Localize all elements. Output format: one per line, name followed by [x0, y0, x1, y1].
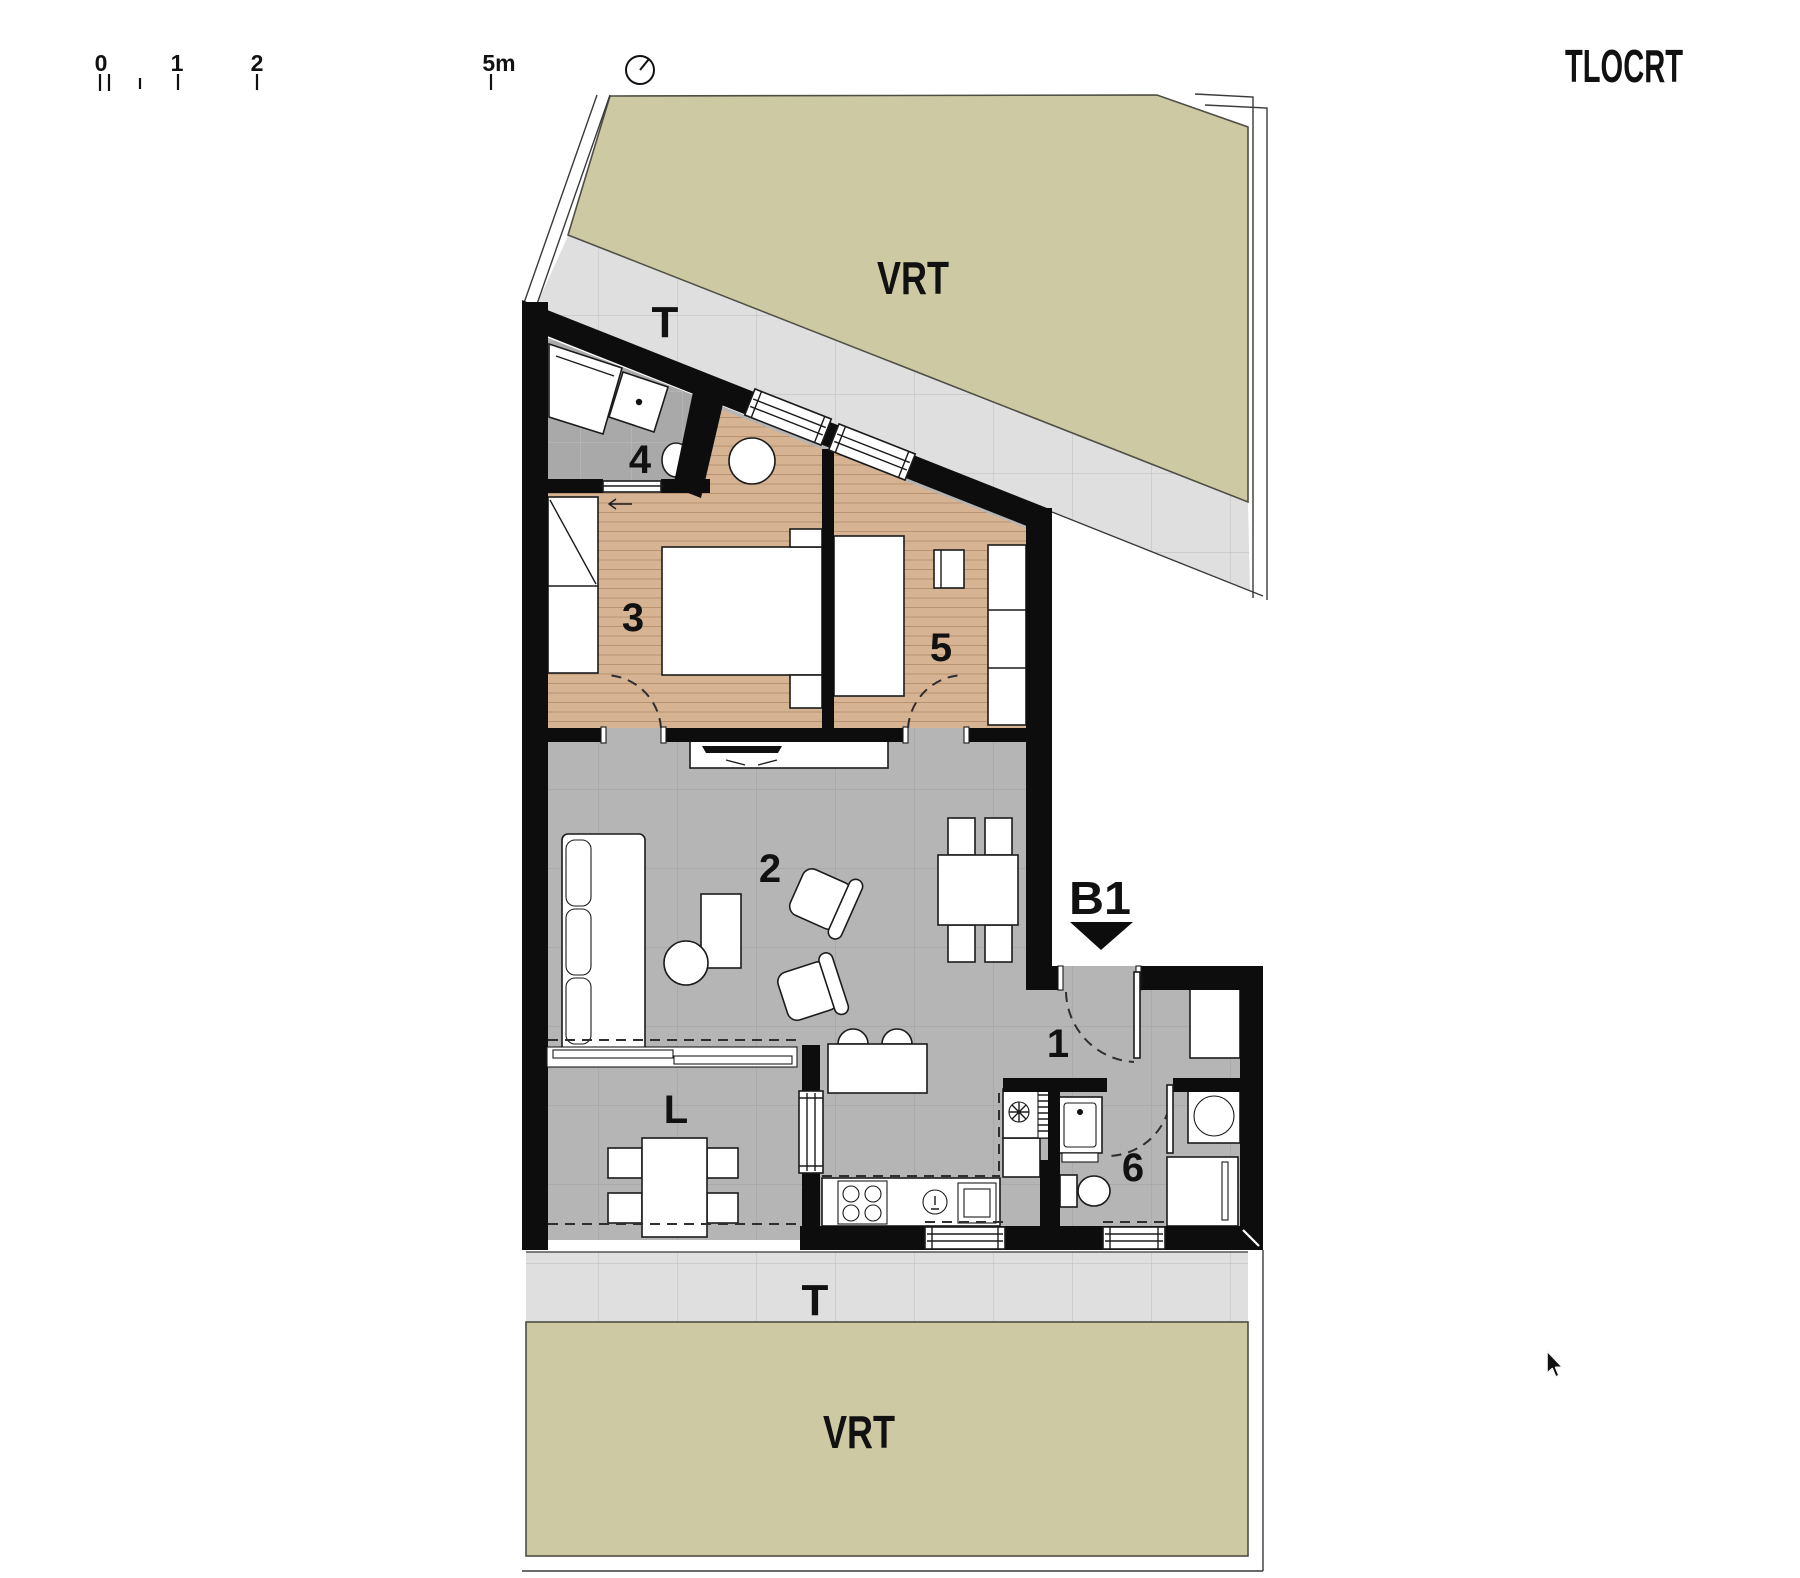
- section-mark-label: B1: [1069, 872, 1131, 924]
- side-table: [664, 941, 708, 985]
- section-mark-arrow-icon: [1070, 922, 1133, 950]
- wall-kitchen-west-b: [802, 1172, 820, 1228]
- terrace-bottom-label: T: [802, 1276, 829, 1325]
- glass-panel: [553, 1050, 673, 1058]
- sofa-cushion: [566, 978, 591, 1044]
- chair: [707, 1193, 738, 1223]
- bed-second: [834, 536, 904, 696]
- wall-bath2-west: [1048, 1078, 1060, 1162]
- room-label-bathroom1: 4: [629, 438, 652, 482]
- wall-bath1-south-a: [548, 479, 603, 493]
- wardrobe: [548, 497, 598, 673]
- shelf: [934, 550, 964, 588]
- tv-icon: [702, 746, 782, 753]
- washbasin2-base: [1062, 1153, 1098, 1162]
- shower2-glass: [1222, 1162, 1228, 1220]
- room-label-bedroom2: 5: [930, 626, 952, 670]
- dining-chair: [948, 925, 975, 962]
- dining-chair: [948, 818, 975, 855]
- scale-1: 1: [171, 50, 184, 76]
- scale-bar: 0 1 2 5m: [95, 50, 516, 91]
- scale-5m: 5m: [482, 50, 515, 76]
- mouse-cursor-icon: [1547, 1351, 1563, 1377]
- scale-ticks: [100, 74, 491, 91]
- window-kitchen: [799, 1091, 823, 1173]
- wall-kitchen-west-a: [802, 1045, 820, 1093]
- wall-west: [522, 302, 548, 1250]
- wall-bedrooms-south-b: [663, 728, 908, 742]
- washbasin-tap: [636, 399, 642, 405]
- oven-door: [964, 1189, 990, 1217]
- door-bath2-leaf: [1167, 1085, 1173, 1153]
- scale-2: 2: [251, 50, 264, 76]
- section-mark: B1: [1069, 872, 1133, 950]
- floor-plan-drawing: 0 1 2 5m TLOCRT VRT T T VRT: [0, 0, 1800, 1578]
- chair: [707, 1148, 738, 1178]
- fan-spokes: [1009, 1102, 1029, 1122]
- wall-bedrooms-south-c: [966, 728, 1026, 742]
- door-entry-leaf: [1134, 972, 1140, 1058]
- page-title: TLOCRT: [1565, 40, 1683, 92]
- chair: [608, 1193, 642, 1223]
- chair: [608, 1148, 642, 1178]
- room-label-entry: 1: [1047, 1022, 1069, 1066]
- room-label-bathroom2: 6: [1122, 1146, 1144, 1190]
- tv-console: [690, 740, 888, 768]
- kitchen-island: [828, 1044, 927, 1093]
- entry-closet: [1190, 988, 1240, 1058]
- dining-chair: [985, 818, 1012, 855]
- wall-east-upper: [1026, 508, 1052, 966]
- wall-entry-left: [1026, 966, 1062, 990]
- wall-bedroom-divider: [822, 449, 834, 742]
- washbasin2-tap: [1077, 1109, 1083, 1115]
- room-label-bedroom1: 3: [622, 596, 644, 640]
- garden-top-label: VRT: [877, 252, 949, 304]
- wall-bath2-west-b: [1040, 1160, 1060, 1228]
- wall-bedrooms-south-a: [548, 728, 605, 742]
- room-label-living: 2: [759, 847, 781, 891]
- nightstand-bottom: [790, 675, 822, 708]
- cabinet: [1003, 1138, 1040, 1177]
- toilet2-tank: [1060, 1175, 1077, 1207]
- bed-main: [662, 547, 822, 675]
- floor-plan-page: 0 1 2 5m TLOCRT VRT T T VRT: [0, 0, 1800, 1578]
- scale-0: 0: [95, 50, 108, 76]
- terrace-top-label: T: [652, 298, 679, 347]
- toilet2-bowl: [1078, 1176, 1110, 1206]
- wall-entry-right: [1140, 966, 1263, 990]
- sofa-cushion: [566, 909, 591, 975]
- dining-chair: [985, 925, 1012, 962]
- terrace-bottom-area: [526, 1252, 1248, 1322]
- wall-bath2-north-b: [1173, 1078, 1242, 1092]
- sofa-cushion: [566, 840, 591, 906]
- wall-south: [800, 1226, 1263, 1250]
- north-arrow-icon: [626, 56, 654, 84]
- glass-panel: [674, 1056, 792, 1064]
- loggia-table: [642, 1138, 707, 1237]
- garden-bottom: T VRT: [522, 1250, 1263, 1571]
- washing-machine-drum: [1194, 1096, 1234, 1136]
- garden-bottom-label: VRT: [823, 1406, 895, 1458]
- room-label-loggia: L: [664, 1088, 688, 1132]
- wall-east-lower: [1240, 988, 1263, 1250]
- dining-table: [938, 855, 1018, 925]
- round-table: [729, 438, 775, 484]
- wardrobe2: [988, 545, 1026, 725]
- nightstand-top: [790, 529, 822, 547]
